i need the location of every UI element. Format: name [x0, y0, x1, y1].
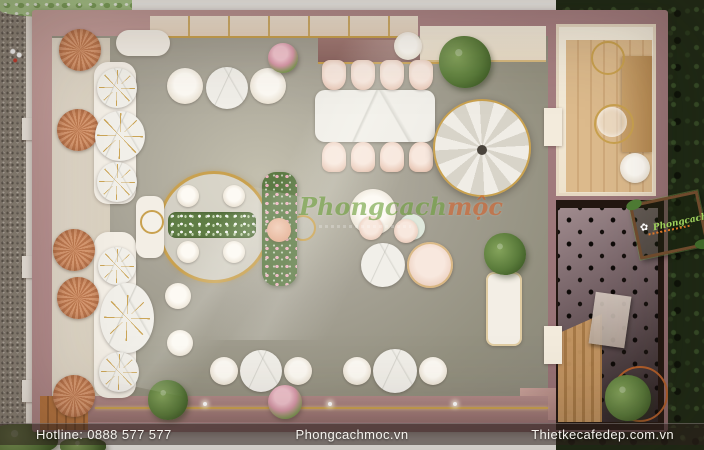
armchair	[167, 68, 203, 104]
dining-chair	[322, 60, 346, 90]
doorway-block	[544, 108, 562, 146]
gold-starburst-lamp	[100, 249, 134, 283]
bollard-lamp	[203, 402, 207, 406]
bollard-lamp	[328, 402, 332, 406]
dining-chair	[351, 60, 375, 90]
gold-starburst-lamp	[101, 354, 137, 390]
spiral-staircase	[433, 99, 531, 197]
dining-chair	[409, 60, 433, 90]
coral-hanging-chair	[53, 229, 95, 271]
bollard-lamp	[453, 402, 457, 406]
floor-plant	[148, 380, 188, 420]
communal-table	[315, 90, 435, 142]
center-flower-planter	[168, 212, 256, 238]
coral-hanging-chair	[59, 29, 101, 71]
dark-room-plant	[605, 375, 651, 421]
gold-starburst-lamp	[99, 70, 135, 106]
doorway-block	[544, 326, 562, 364]
dining-chair	[322, 142, 346, 172]
daybed-bench	[486, 272, 522, 346]
coral-hanging-chair	[53, 375, 95, 417]
footer-caption-bar: Hotline: 0888 577 577 Phongcachmoc.vn Th…	[0, 423, 704, 445]
office-pouf	[620, 153, 650, 183]
coral-hanging-chair	[57, 109, 99, 151]
gold-starburst-lamp	[97, 113, 143, 159]
pavilion-seat	[223, 241, 245, 263]
armchair	[343, 357, 371, 385]
gold-ring-table	[140, 210, 164, 234]
armchair	[419, 357, 447, 385]
armchair	[250, 68, 286, 104]
small-chair	[359, 216, 383, 240]
bench-plant	[484, 233, 526, 275]
flower-plant	[268, 385, 302, 419]
gold-hoop-lamp	[591, 41, 625, 75]
pavilion-seat	[223, 185, 245, 207]
armchair	[284, 357, 312, 385]
marble-table	[361, 243, 405, 287]
flower-decor-left	[8, 46, 24, 64]
armchair	[165, 283, 191, 309]
curved-lounge-chair	[407, 242, 453, 288]
staircase-center-post	[477, 145, 487, 155]
pavilion-seat	[177, 185, 199, 207]
flower-icon: ✿	[639, 222, 649, 235]
cafe-floorplan-render: Phongcachmộc ✿ Phongcachmộc Hotline: 088…	[0, 0, 704, 450]
pavilion-seat	[177, 241, 199, 263]
acrylic-chair	[597, 107, 627, 137]
large-plant	[439, 36, 491, 88]
gold-starburst-lamp	[104, 295, 150, 341]
dining-chair	[380, 60, 404, 90]
peach-parasol	[267, 218, 291, 242]
stone-step-block	[589, 292, 632, 349]
window-band-top	[150, 16, 418, 38]
small-chair	[394, 219, 418, 243]
coral-hanging-chair	[57, 277, 99, 319]
dining-chair	[409, 142, 433, 172]
corner-sofa	[116, 30, 170, 56]
marble-table	[373, 349, 417, 393]
flower-plant	[268, 43, 298, 73]
armchair	[167, 330, 193, 356]
gold-starburst-lamp	[99, 164, 135, 200]
dining-chair	[380, 142, 404, 172]
armchair	[210, 357, 238, 385]
marble-table	[240, 350, 282, 392]
marble-table	[206, 67, 248, 109]
armchair	[394, 32, 422, 60]
website-right-text: Thietkecafedep.com.vn	[531, 424, 674, 445]
dining-chair	[351, 142, 375, 172]
